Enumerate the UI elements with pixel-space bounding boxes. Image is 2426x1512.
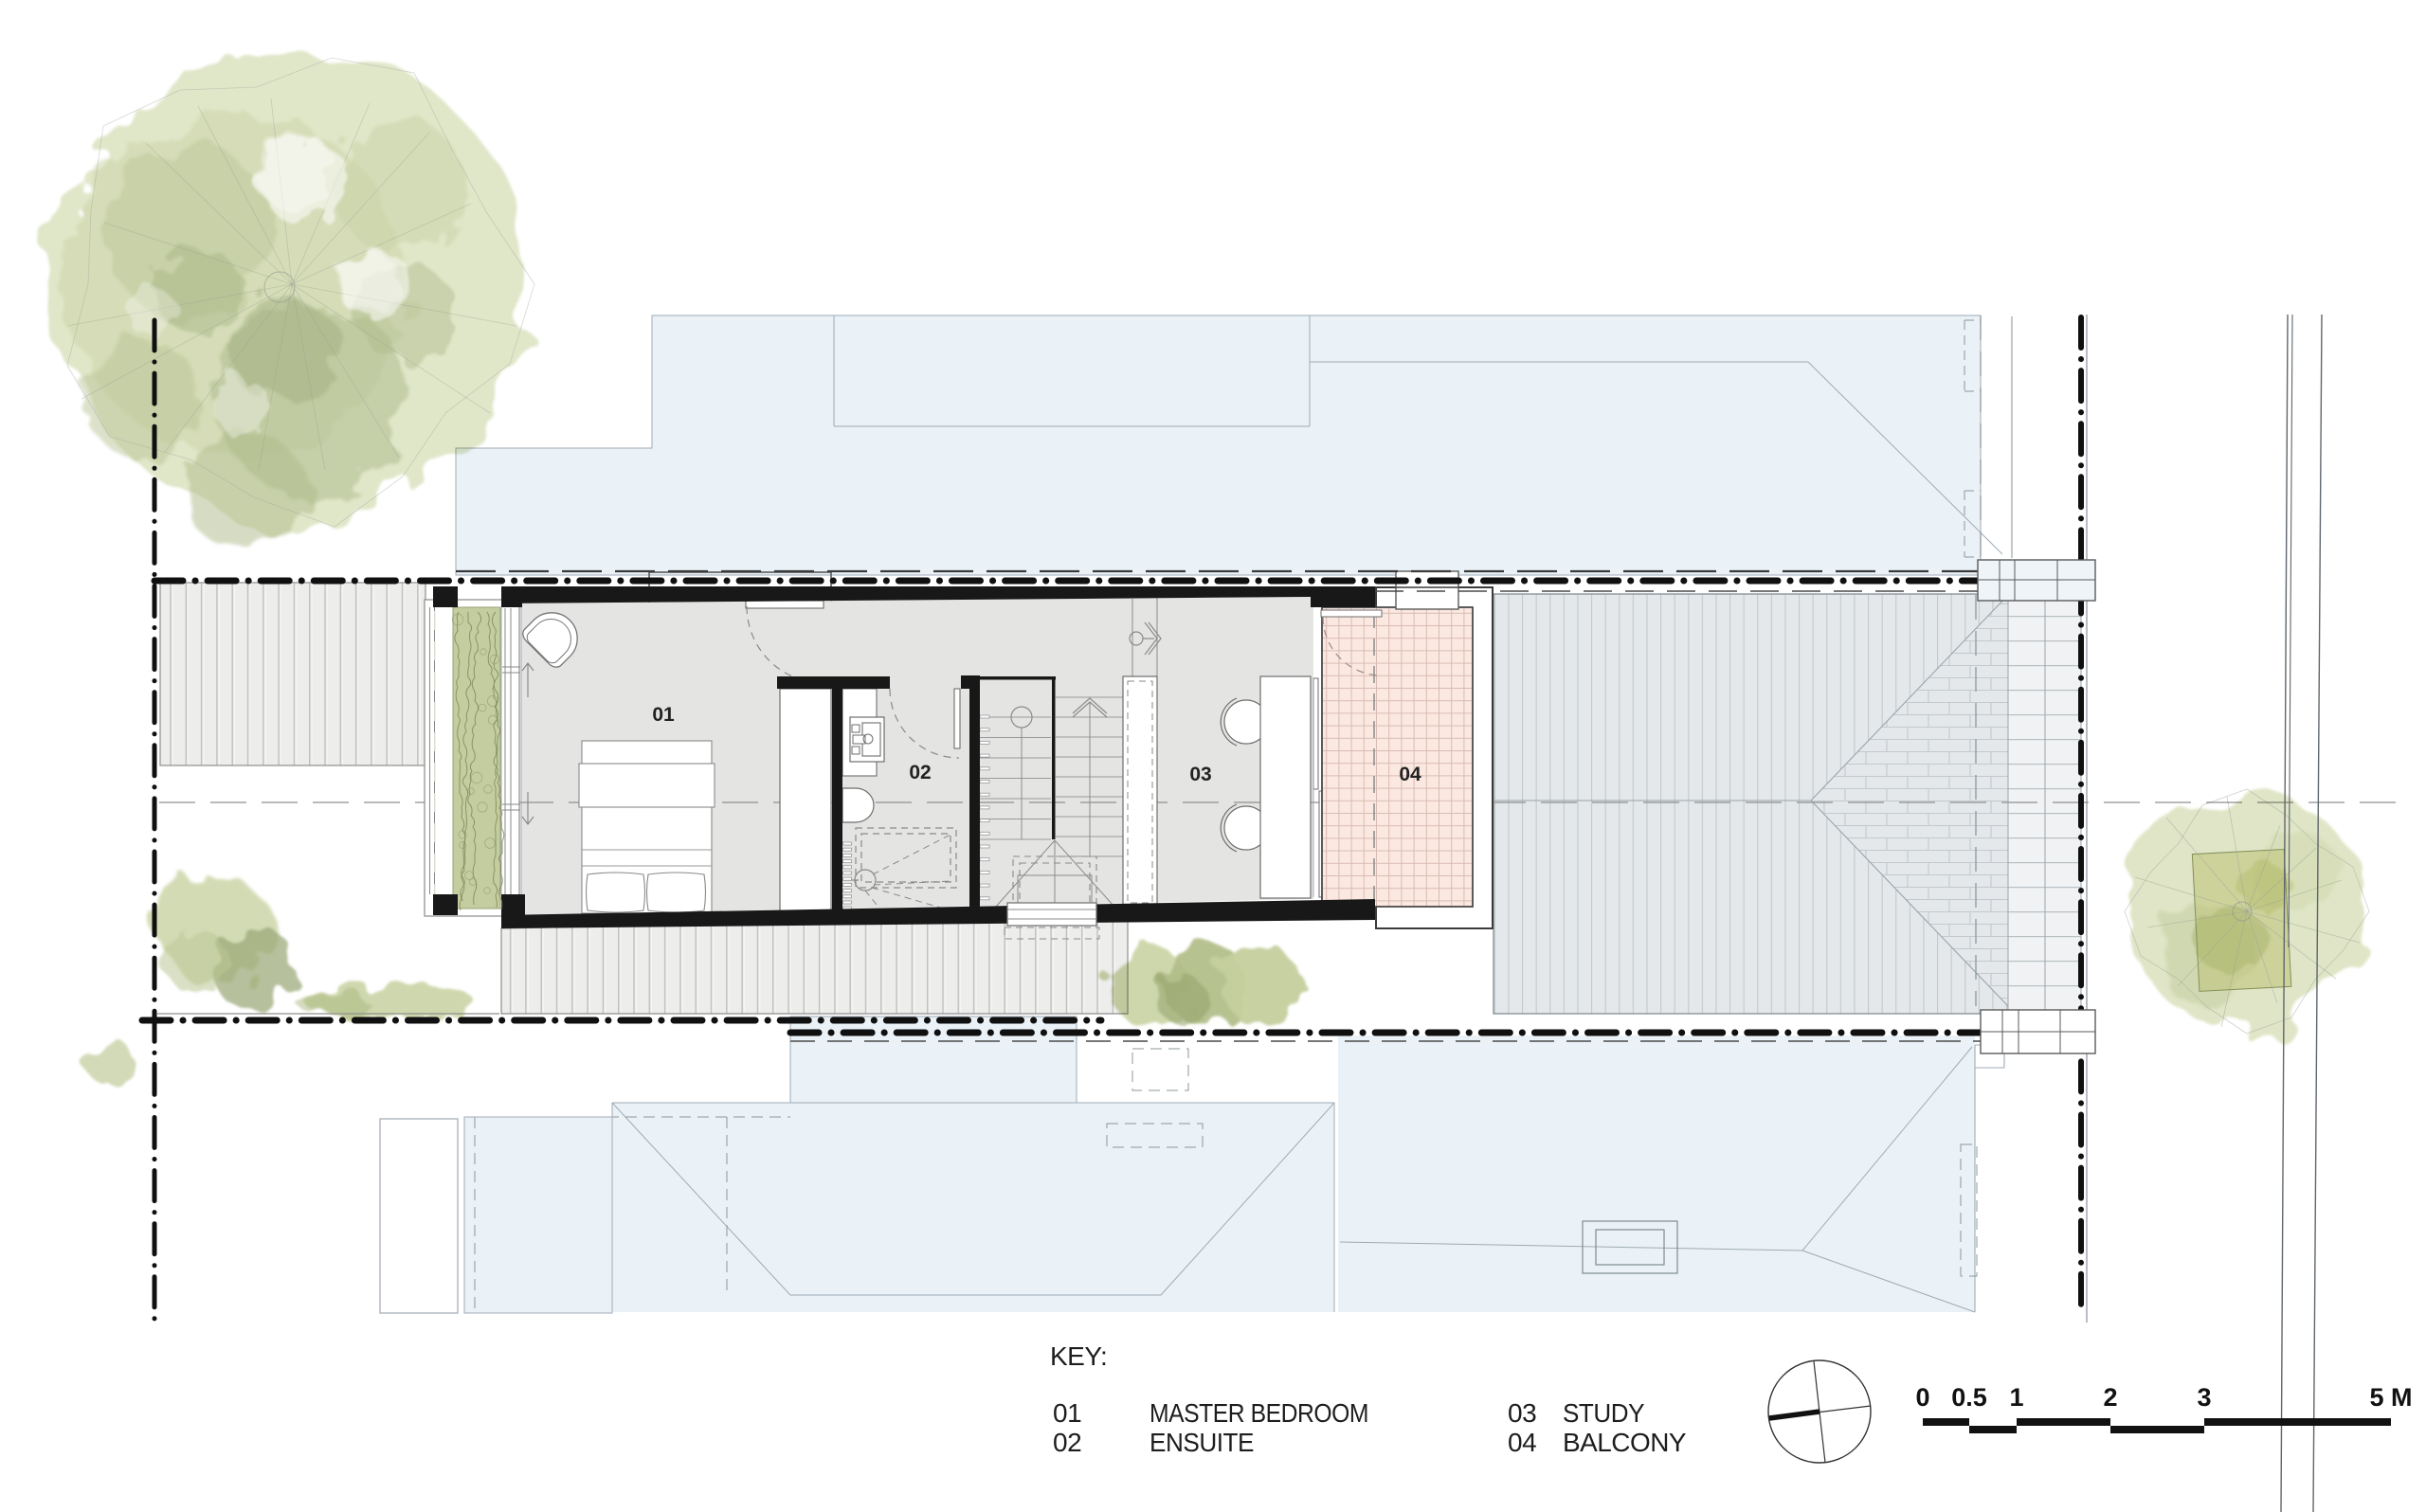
svg-text:3: 3 [2197,1383,2211,1412]
svg-text:STUDY: STUDY [1563,1398,1645,1428]
svg-text:01: 01 [652,704,675,726]
svg-text:02: 02 [1053,1428,1081,1457]
svg-text:01: 01 [1053,1398,1081,1428]
svg-text:0: 0 [1915,1383,1929,1412]
svg-text:03: 03 [1508,1398,1536,1428]
svg-text:ENSUITE: ENSUITE [1150,1428,1254,1457]
svg-text:03: 03 [1189,764,1211,785]
svg-text:5 M: 5 M [2369,1383,2412,1412]
svg-text:1: 1 [2009,1383,2023,1412]
svg-text:04: 04 [1508,1428,1536,1457]
svg-text:2: 2 [2103,1383,2117,1412]
svg-text:BALCONY: BALCONY [1563,1428,1687,1457]
svg-text:KEY:: KEY: [1050,1341,1107,1371]
svg-text:MASTER BEDROOM: MASTER BEDROOM [1150,1398,1368,1428]
svg-text:02: 02 [909,762,931,783]
svg-text:0.5: 0.5 [1951,1383,1987,1412]
svg-text:04: 04 [1399,764,1421,785]
